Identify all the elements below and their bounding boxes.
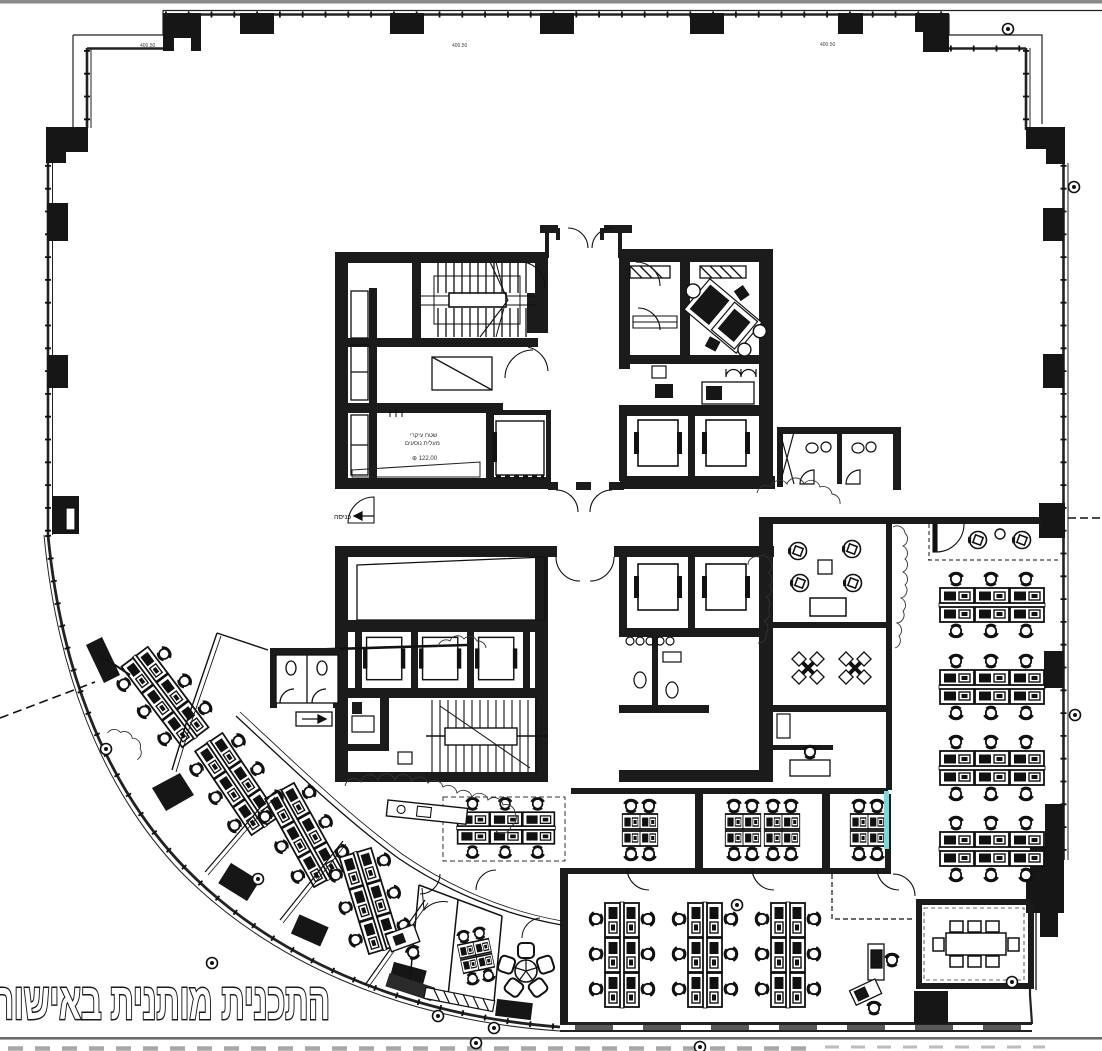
svg-text:כניסה: כניסה: [334, 514, 351, 521]
svg-text:התכנית מותנית באישור: התכנית מותנית באישור: [0, 974, 330, 1031]
svg-text:400.50: 400.50: [452, 43, 468, 49]
svg-text:⊕ 122.00: ⊕ 122.00: [412, 456, 438, 462]
svg-text:400.50: 400.50: [820, 42, 836, 48]
svg-text:שטח עיקרי: שטח עיקרי: [410, 433, 438, 439]
svg-text:מעלית נוסעים: מעלית נוסעים: [405, 439, 440, 447]
svg-text:400.50: 400.50: [140, 43, 156, 49]
